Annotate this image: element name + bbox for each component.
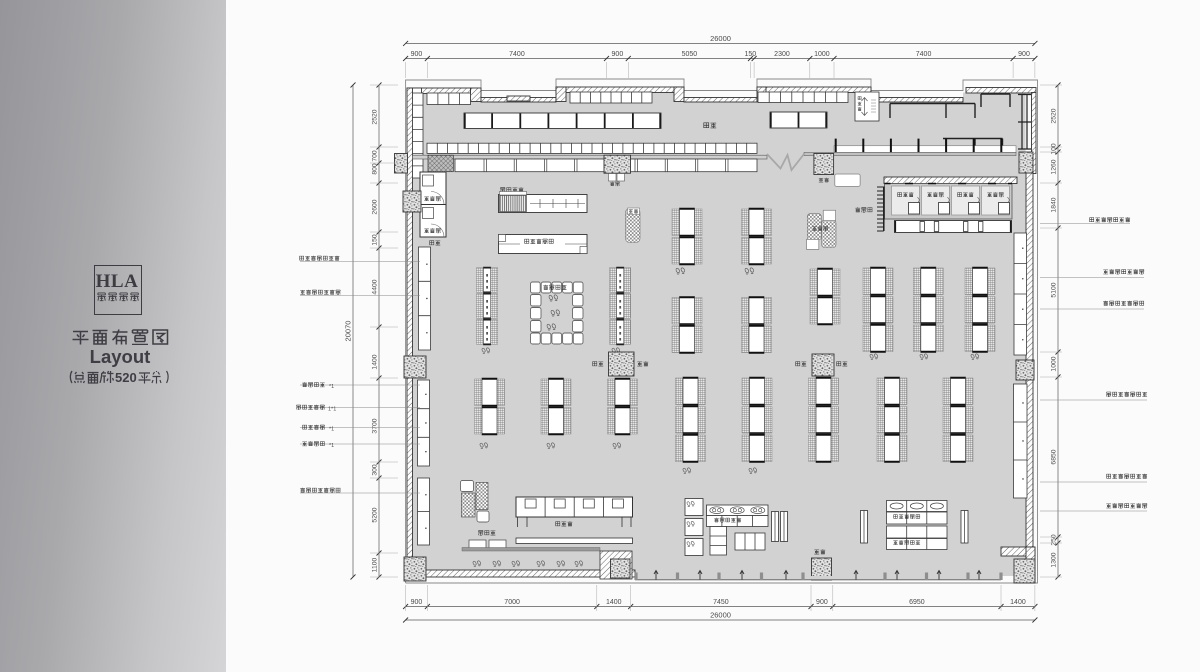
svg-text:900: 900: [612, 51, 624, 58]
svg-text:900: 900: [816, 599, 828, 606]
svg-text:150: 150: [744, 51, 756, 58]
svg-text:800: 800: [372, 163, 379, 175]
svg-text:20070: 20070: [344, 321, 353, 342]
svg-text:1260: 1260: [1051, 159, 1058, 174]
svg-text:2520: 2520: [1051, 108, 1058, 123]
svg-text:7400: 7400: [916, 51, 932, 58]
svg-text:1300: 1300: [1051, 552, 1058, 567]
svg-text:5050: 5050: [682, 51, 698, 58]
svg-text:2520: 2520: [372, 109, 379, 124]
svg-text:*1: *1: [329, 443, 334, 449]
svg-text:1400: 1400: [1010, 599, 1026, 606]
svg-text:1000: 1000: [1051, 356, 1058, 371]
svg-text:250: 250: [1051, 534, 1058, 546]
svg-text:2600: 2600: [372, 199, 379, 214]
svg-text:1100: 1100: [372, 557, 379, 572]
svg-text:1*1: 1*1: [328, 407, 336, 413]
svg-text:900: 900: [1018, 51, 1030, 58]
svg-text:7400: 7400: [509, 51, 525, 58]
svg-text:5200: 5200: [372, 507, 379, 522]
svg-text:*1: *1: [329, 427, 334, 433]
svg-text:700: 700: [372, 150, 379, 162]
svg-text:26000: 26000: [710, 34, 731, 43]
svg-text:1400: 1400: [372, 354, 379, 369]
svg-text:7000: 7000: [504, 599, 520, 606]
svg-text:6950: 6950: [909, 599, 925, 606]
svg-text:300: 300: [372, 464, 379, 476]
svg-text:1840: 1840: [1051, 197, 1058, 212]
svg-text:2300: 2300: [774, 51, 790, 58]
svg-text:1400: 1400: [606, 599, 622, 606]
svg-text:4400: 4400: [372, 279, 379, 294]
svg-text:7450: 7450: [713, 599, 729, 606]
svg-text:5100: 5100: [1051, 282, 1058, 297]
svg-text:6850: 6850: [1051, 449, 1058, 464]
svg-text:1000: 1000: [814, 51, 830, 58]
svg-text:100: 100: [1051, 143, 1058, 155]
svg-text:*1: *1: [329, 384, 334, 390]
svg-text:150: 150: [372, 234, 379, 246]
svg-text:900: 900: [411, 599, 423, 606]
svg-text:26000: 26000: [710, 611, 731, 620]
svg-text:3700: 3700: [372, 418, 379, 433]
svg-text:900: 900: [411, 51, 423, 58]
